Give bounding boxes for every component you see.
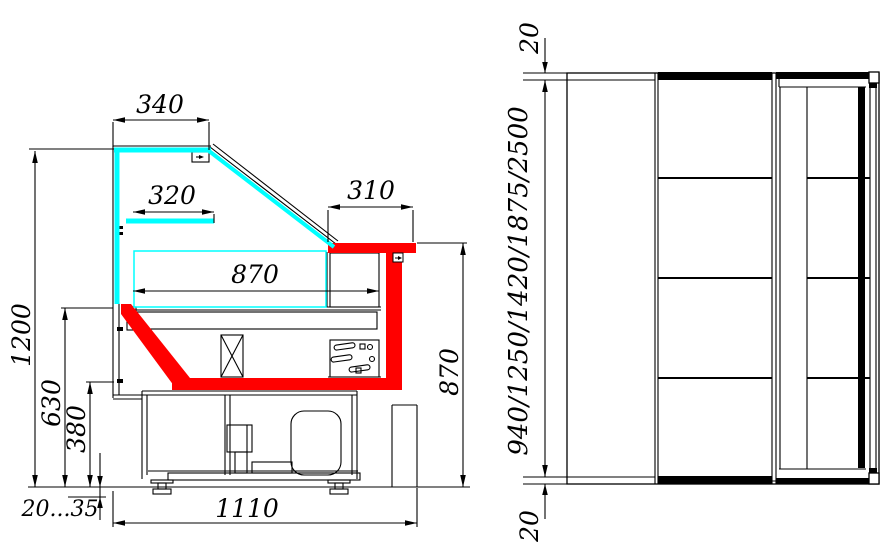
top-view-structure xyxy=(567,73,879,484)
counter-top xyxy=(328,243,416,253)
technical-drawing-page: 340 320 310 870 1200 630 380 20...35 111… xyxy=(0,0,894,559)
dim-label-counter-height: 870 xyxy=(435,348,464,396)
top-view-dimensions: 20 940/1250/1420/1875/2500 20 xyxy=(504,22,567,543)
dim-label-end-overhang-bottom: 20 xyxy=(515,510,544,543)
dim-label-shelf-depth: 320 xyxy=(148,181,196,210)
dim-label-overall-height: 1200 xyxy=(7,303,36,367)
bottom-band xyxy=(172,378,402,390)
dim-label-base-section-height: 380 xyxy=(62,405,91,453)
dim-label-case-lengths: 940/1250/1420/1875/2500 xyxy=(504,106,534,455)
top-view: 20 940/1250/1420/1875/2500 20 xyxy=(504,22,879,543)
dim-label-end-overhang-top: 20 xyxy=(515,22,544,55)
electrical-box xyxy=(227,425,252,452)
counter-wall xyxy=(386,253,402,390)
side-view: 340 320 310 870 1200 630 380 20...35 111… xyxy=(7,90,470,527)
display-case-drawing: 340 320 310 870 1200 630 380 20...35 111… xyxy=(0,0,894,559)
dim-label-top-glass-depth: 340 xyxy=(136,90,184,119)
front-diagonal xyxy=(121,304,190,390)
compressor xyxy=(291,411,341,475)
dim-label-foot-adjustment: 20...35 xyxy=(21,497,99,522)
side-view-structure xyxy=(28,144,470,497)
glass-panels xyxy=(114,148,334,307)
dim-label-display-depth: 870 xyxy=(231,260,279,289)
wall-detail-square xyxy=(393,253,403,262)
display-opening xyxy=(134,251,326,307)
dim-label-counter-depth: 310 xyxy=(347,176,395,205)
front-sloped-glass xyxy=(209,151,334,247)
dim-label-overall-depth: 1110 xyxy=(215,494,279,523)
